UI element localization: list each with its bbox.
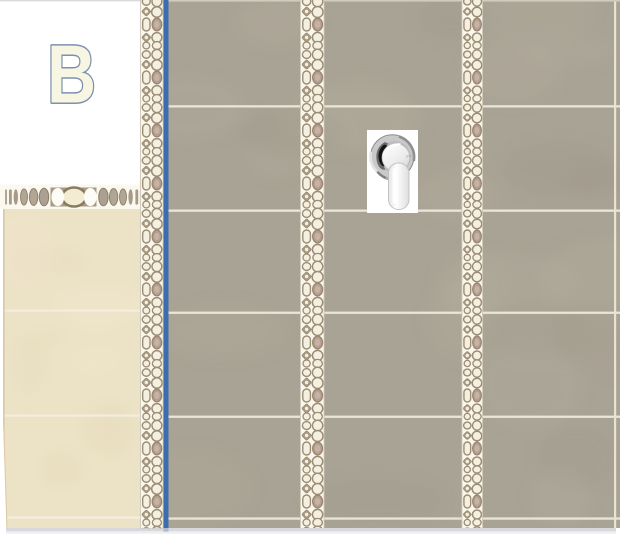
svg-text:B: B (47, 28, 96, 121)
svg-text:grohe: grohe (406, 154, 414, 158)
